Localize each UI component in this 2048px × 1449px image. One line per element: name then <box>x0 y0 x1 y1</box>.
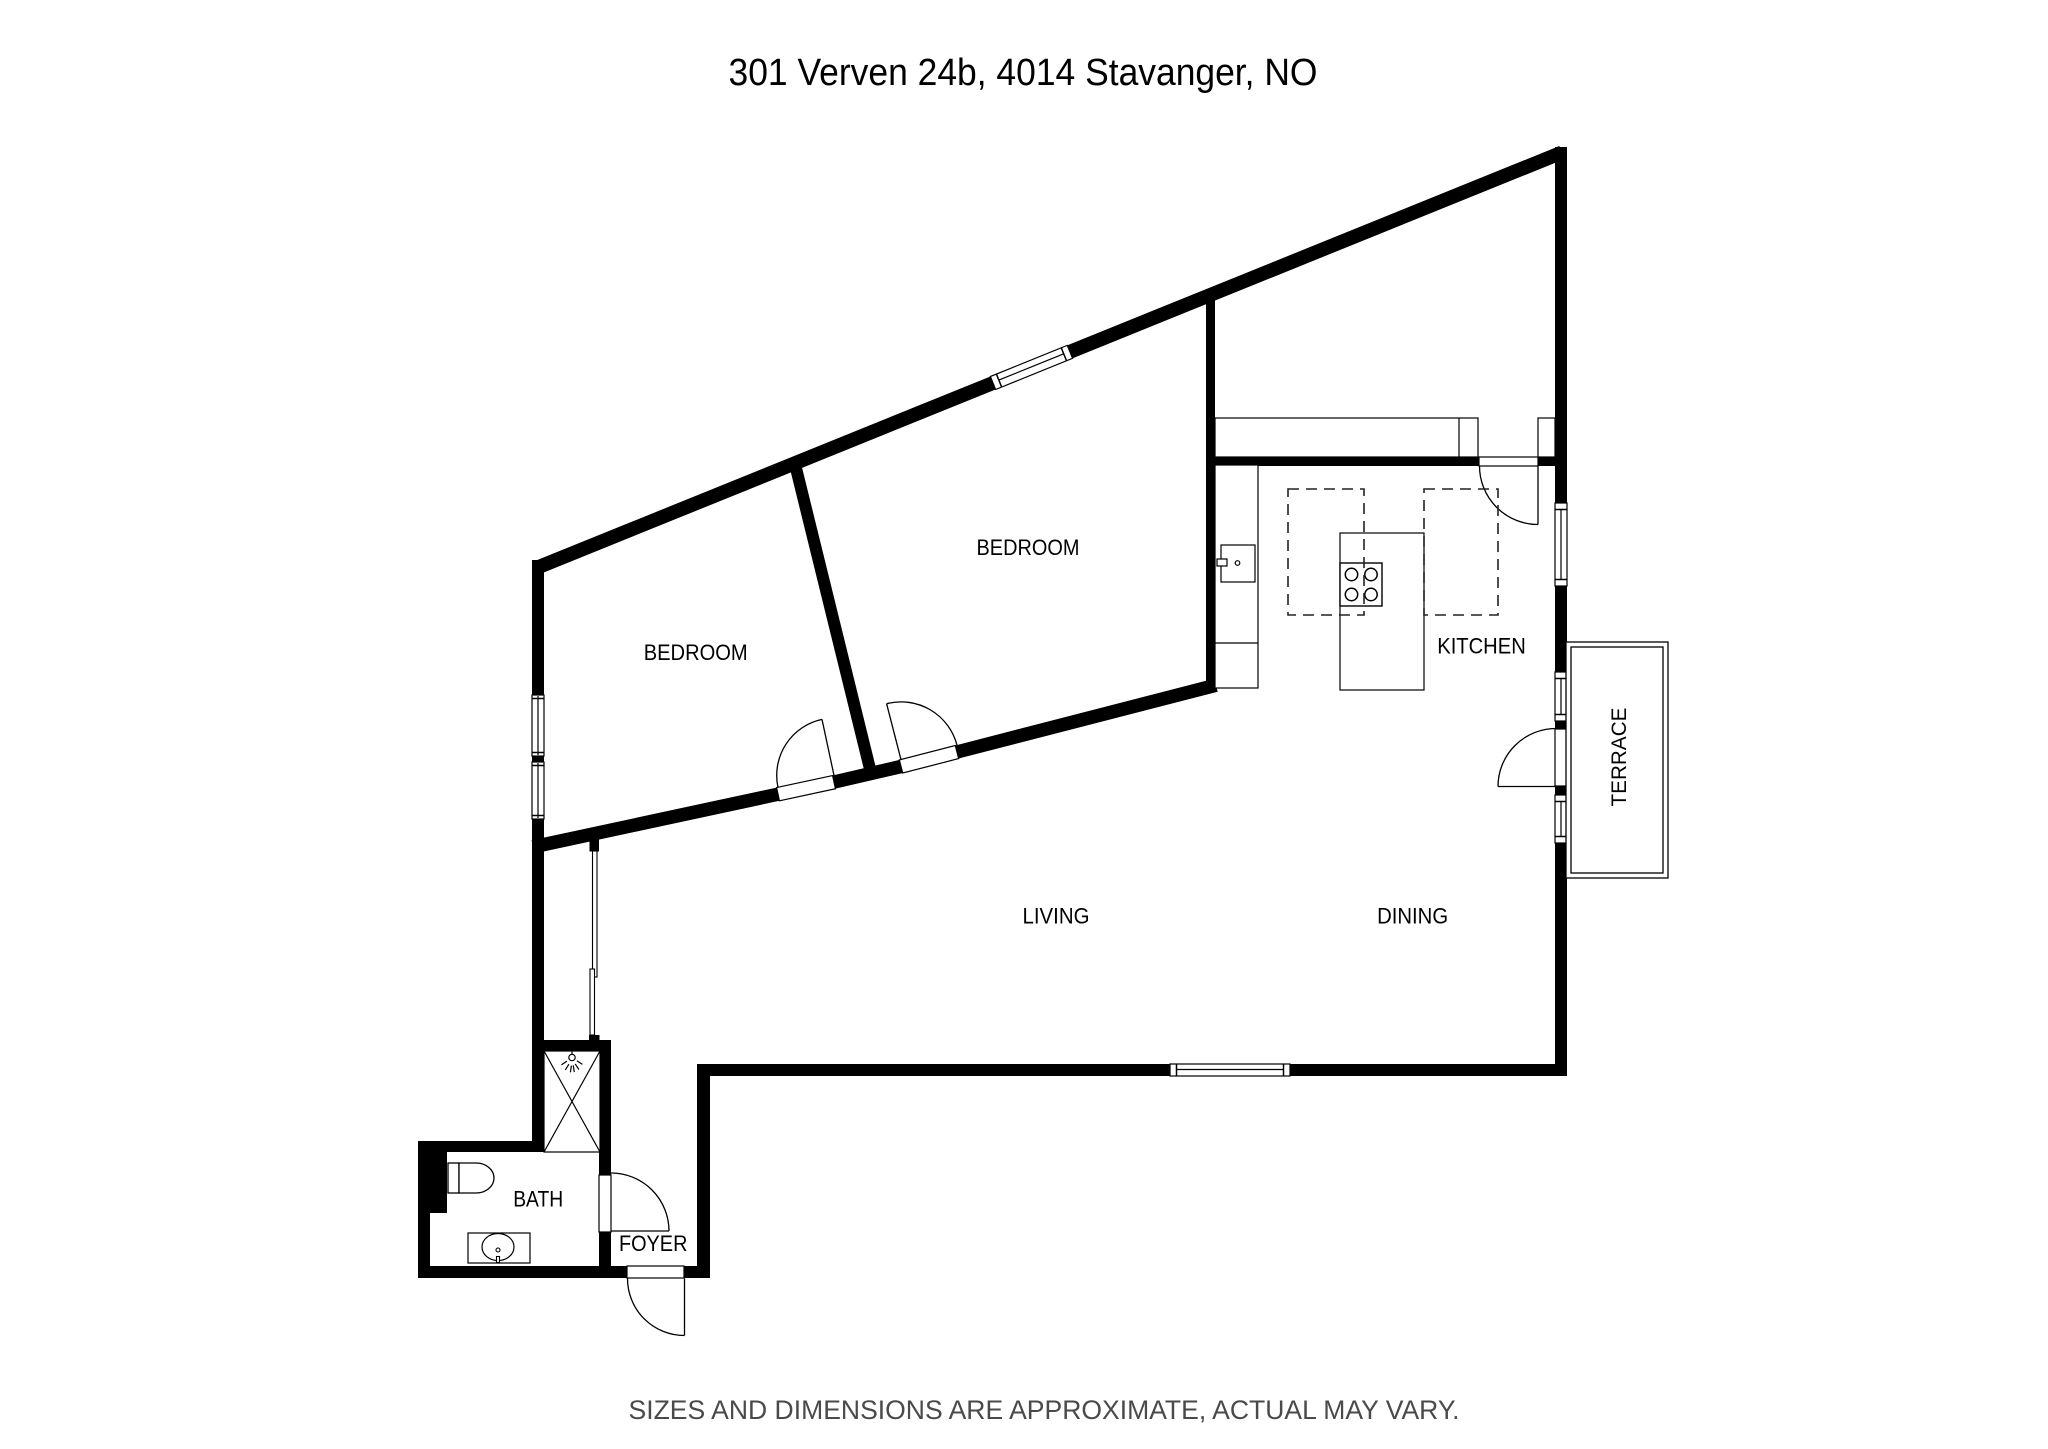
svg-text:BEDROOM: BEDROOM <box>977 535 1080 560</box>
svg-text:BATH: BATH <box>513 1187 563 1212</box>
svg-text:KITCHEN: KITCHEN <box>1437 634 1526 659</box>
svg-text:SIZES AND DIMENSIONS ARE APPRO: SIZES AND DIMENSIONS ARE APPROXIMATE, AC… <box>629 1395 1460 1425</box>
svg-text:LIVING: LIVING <box>1023 904 1090 929</box>
svg-text:TERRACE: TERRACE <box>1608 708 1631 807</box>
svg-text:FOYER: FOYER <box>619 1231 688 1256</box>
svg-text:BEDROOM: BEDROOM <box>644 640 748 665</box>
svg-text:DINING: DINING <box>1377 904 1448 929</box>
svg-text:301 Verven 24b, 4014 Stavanger: 301 Verven 24b, 4014 Stavanger, NO <box>729 52 1318 94</box>
